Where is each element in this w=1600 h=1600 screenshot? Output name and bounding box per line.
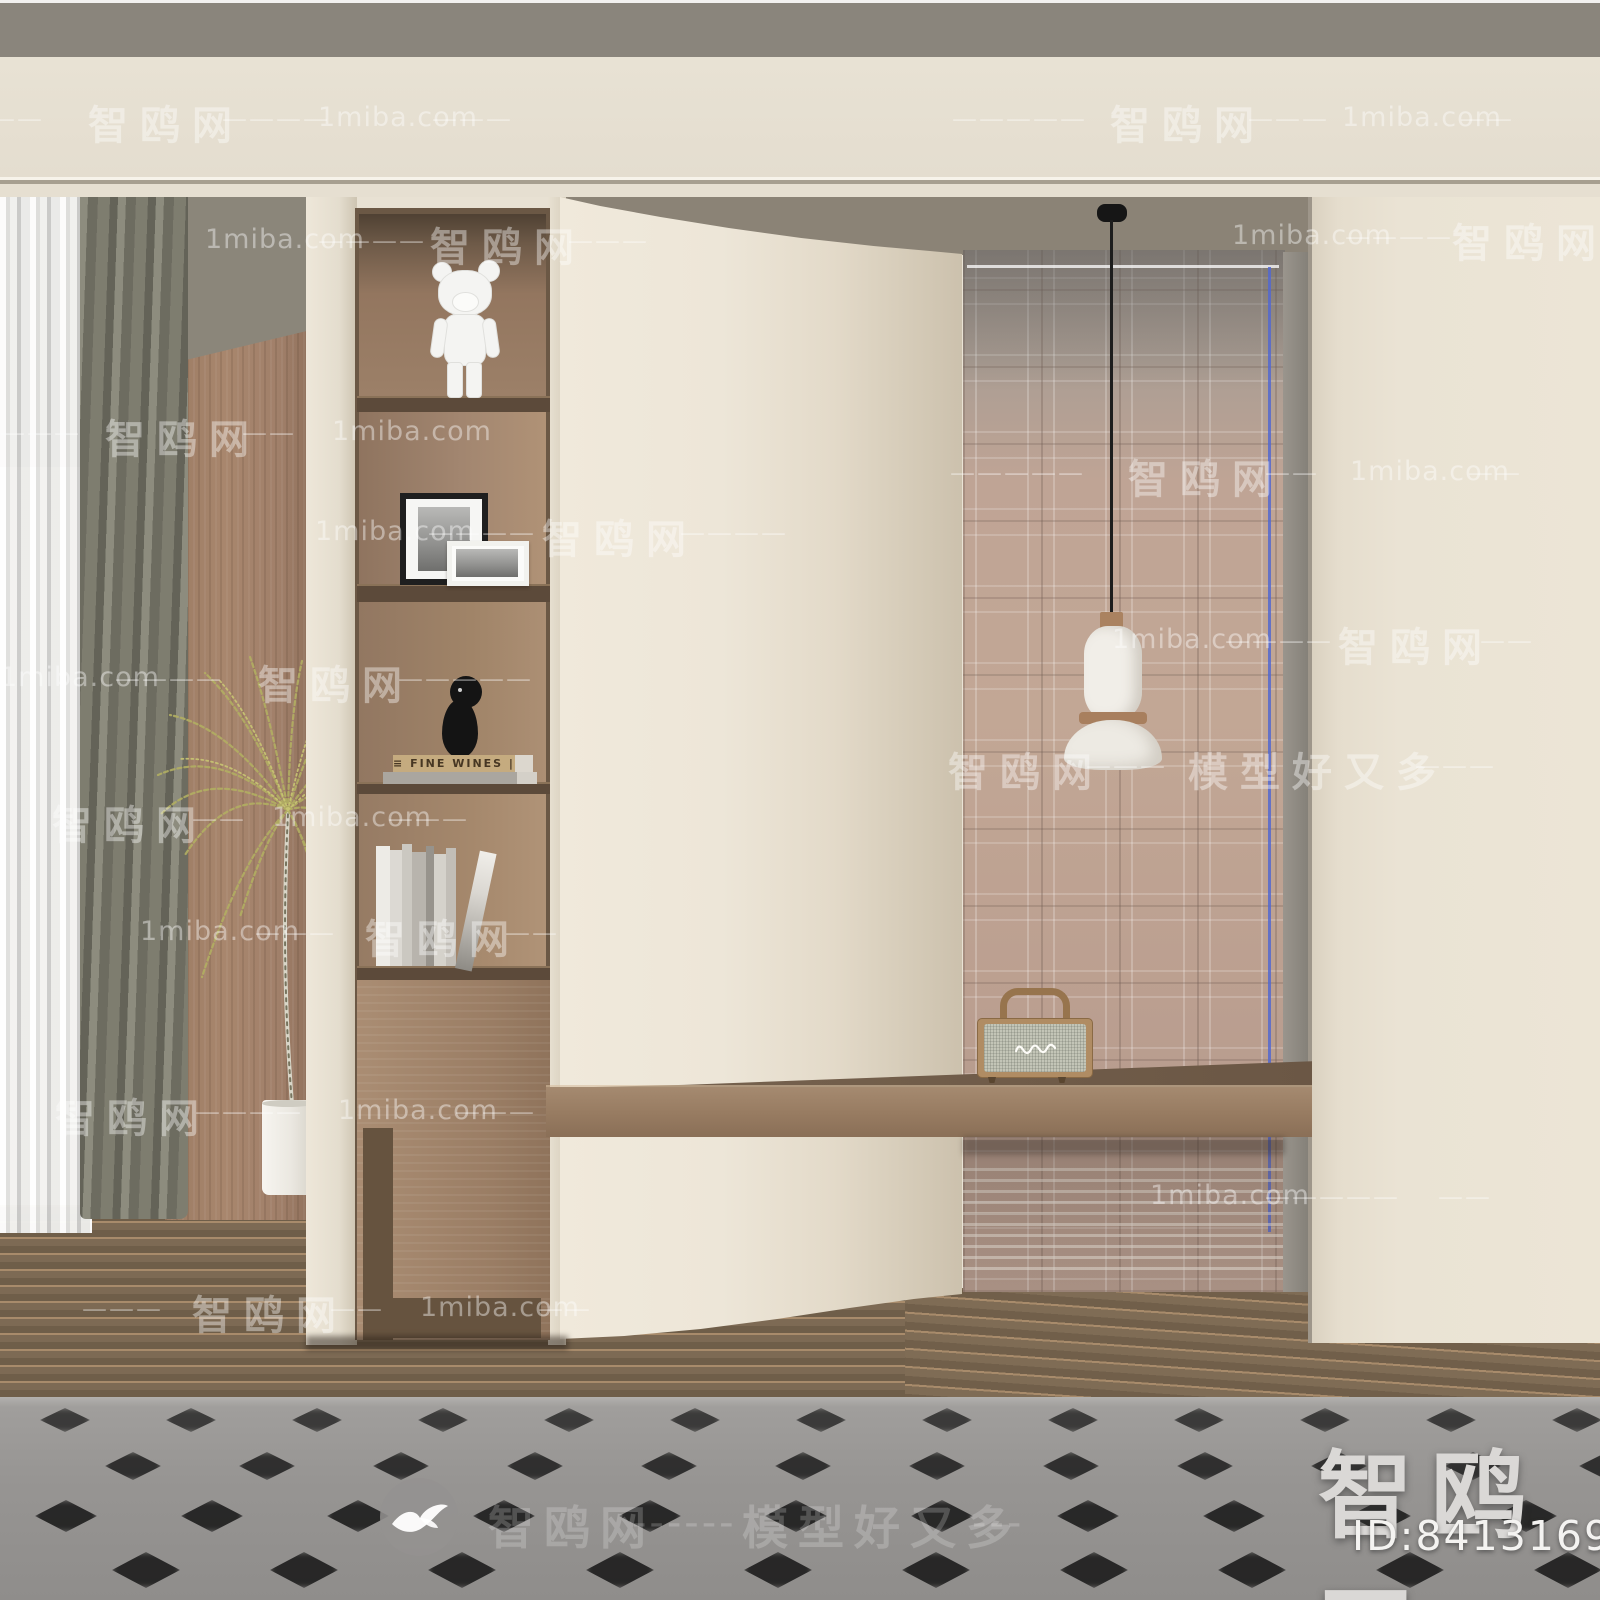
fine-wines-book-spine: ≡ FINE WINES | (393, 755, 515, 772)
bookshelf-left-stile (306, 197, 357, 1345)
model-id-text: ID:841316943 (1352, 1512, 1600, 1560)
shelf-divider-1 (357, 396, 550, 412)
fine-wines-book-pages (515, 755, 533, 772)
floating-desk-front (546, 1087, 1312, 1137)
gray-book-pages (517, 772, 537, 784)
bird-logo-icon (380, 1478, 458, 1556)
pendant-cord (1110, 220, 1113, 618)
ceiling-band (0, 3, 1600, 57)
site-logo-text: 智鸥网 (1318, 1420, 1600, 1600)
niche-top-shadow (963, 250, 1285, 390)
gray-book-spine (383, 772, 517, 784)
right-wall (1310, 197, 1600, 1343)
interior-render: ≡ FINE WINES | (0, 0, 1600, 1600)
ceiling-fascia-lower (0, 184, 1600, 197)
black-figurine-highlight (458, 688, 462, 692)
sheer-curtain (0, 197, 92, 1233)
radio-grille (984, 1024, 1086, 1072)
radio-logo-script (1014, 1039, 1059, 1057)
shelf-divider-2 (357, 584, 550, 602)
bookshelf-floor-shadow (306, 1336, 568, 1350)
black-figurine-body (442, 700, 478, 758)
niche-white-trim (967, 265, 1279, 268)
niche-lower-shadow (963, 1140, 1285, 1292)
shelf-divider-4 (357, 966, 550, 980)
pendant-lantern-body (1084, 626, 1142, 720)
ceiling-fascia (0, 57, 1600, 177)
cabinet-shadow-horizontal (363, 1298, 541, 1338)
right-wall-corner-seam (1308, 197, 1312, 1343)
white-picture-frame (447, 541, 529, 586)
curved-partition-wall (560, 197, 962, 1343)
desk-under-shadow (963, 1137, 1285, 1155)
